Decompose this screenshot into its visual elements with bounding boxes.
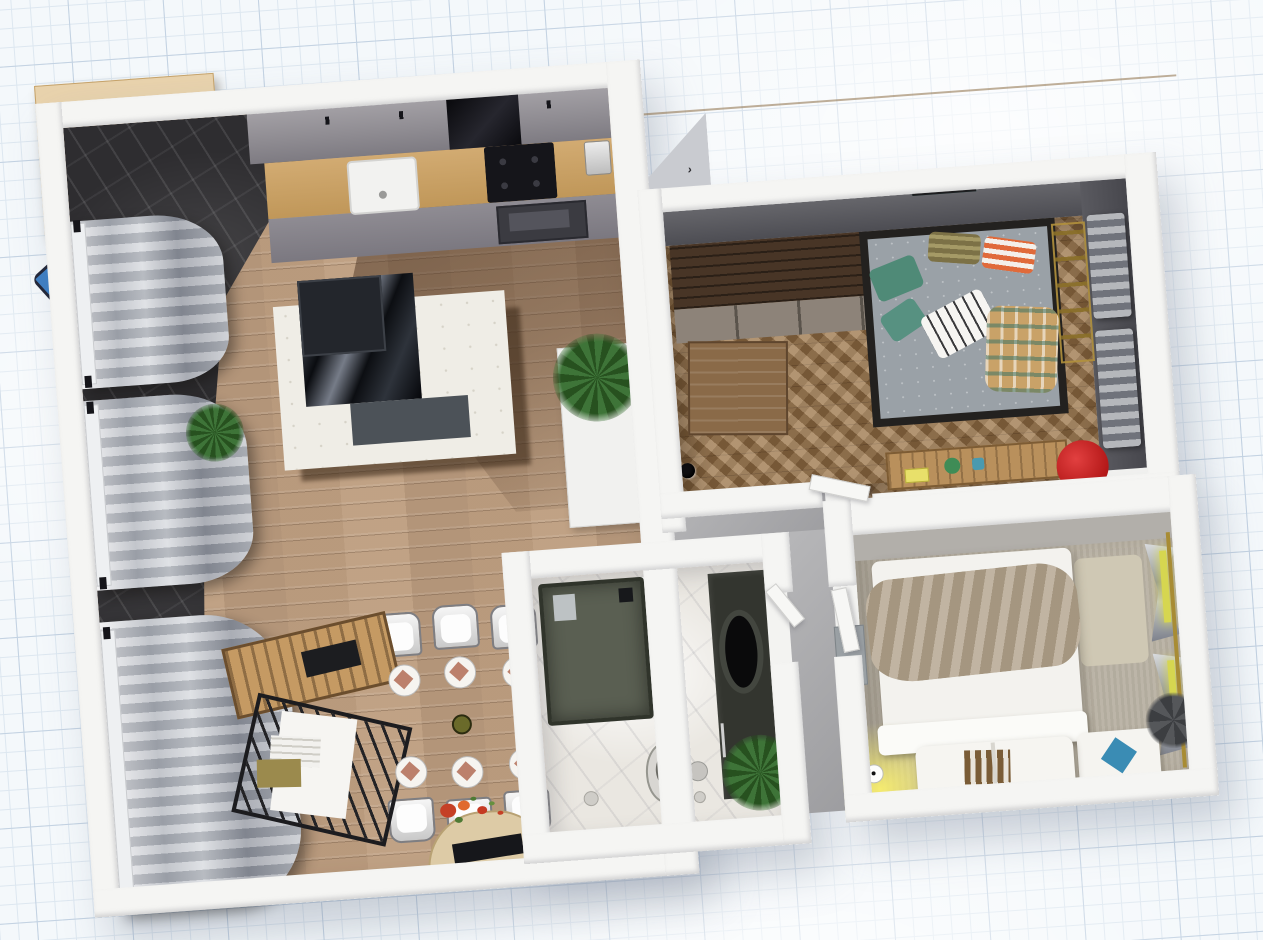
orange-striped-pillow — [981, 236, 1037, 275]
floorplan-stage: › — [0, 0, 1263, 940]
oval-basin — [716, 608, 766, 695]
desk-cup — [972, 457, 985, 470]
leaning-wood-panel — [688, 341, 788, 435]
coffee-tray — [301, 639, 361, 677]
floorplan-canvas[interactable]: › — [34, 3, 1233, 934]
desk-notebook — [904, 468, 929, 484]
brown-striped-pillow — [964, 750, 1011, 785]
walk-in-shower — [538, 577, 654, 726]
coffee-machine — [584, 140, 612, 176]
plaid-throw — [985, 305, 1060, 393]
olive-pillow — [257, 759, 302, 788]
dining-chair — [431, 603, 480, 650]
vanity-handle — [721, 723, 726, 757]
island-hood-cap — [297, 275, 386, 357]
desk-plant — [944, 457, 961, 474]
range-hood — [446, 91, 522, 150]
beige-rug — [1073, 554, 1149, 667]
kitchen-sink — [346, 156, 420, 215]
blue-cushion — [1101, 737, 1137, 773]
cooktop — [484, 142, 558, 203]
island-slate-inset — [350, 395, 471, 446]
olive-striped-pillow — [927, 231, 981, 264]
oven — [496, 200, 589, 244]
bedroom-window-curtain — [1086, 212, 1132, 319]
